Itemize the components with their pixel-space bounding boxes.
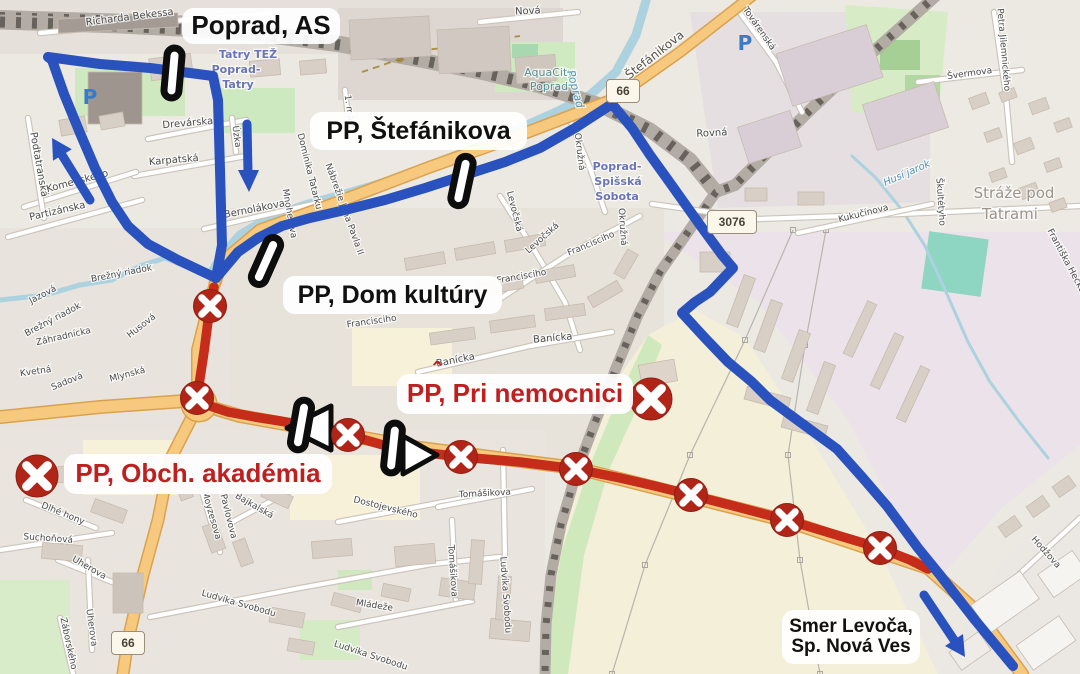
stop-label-poprad-as: Poprad, AS	[182, 8, 340, 44]
stop-label-pp-obch-akademia: PP, Obch. akadémia	[64, 454, 332, 494]
stop-label-pp-pri-nemocnici: ˆ PP, Pri nemocnici	[397, 374, 633, 414]
building	[798, 192, 824, 205]
smer-line-1: Smer Levoča,	[789, 617, 913, 637]
building	[468, 540, 484, 585]
building	[349, 16, 431, 60]
sports-pitch	[921, 231, 988, 297]
stop-label-text: Poprad, AS	[191, 12, 330, 39]
road-badge-66-north: 66	[606, 79, 640, 103]
aqua-label: Poprad	[530, 80, 568, 93]
building	[745, 188, 767, 201]
stop-label-smer-levoca: Smer Levoča, Sp. Nová Ves	[782, 610, 920, 664]
map-canvas: Richarda BekessaTatry TEŽPoprad-TatryDre…	[0, 0, 1080, 674]
station-label: Poprad-	[212, 63, 261, 76]
stop-label-pp-dom-kultury: PP, Dom kultúry	[283, 276, 502, 314]
station-label: Sobota	[595, 190, 639, 203]
bus-stop-capsule	[383, 422, 403, 473]
stop-label-text: PP, Dom kultúry	[298, 282, 488, 308]
building	[437, 26, 511, 74]
station-label: Spišská	[594, 175, 641, 188]
building	[113, 573, 143, 613]
street-road	[503, 450, 505, 557]
stop-label-pp-stefanikova: PP, Štefánikova	[310, 112, 527, 150]
building	[299, 59, 326, 75]
street-label: Nová	[515, 4, 541, 17]
road-badge-66-south: 66	[111, 631, 145, 655]
road-badge-3076: 3076	[707, 210, 757, 234]
bus-stop-marker	[163, 47, 182, 98]
stop-label-text: Smer Levoča, Sp. Nová Ves	[789, 617, 913, 657]
direction-arrow-south	[247, 124, 248, 172]
building	[394, 543, 436, 566]
place-label: Stráže pod	[974, 184, 1055, 202]
place-label: Tatrami	[981, 205, 1038, 223]
station-label: Poprad-	[593, 160, 642, 173]
building	[311, 538, 352, 558]
bus-stop-capsule	[163, 47, 182, 98]
parking-icon: P	[83, 85, 98, 109]
bus-stop-marker	[383, 422, 403, 473]
smer-line-2: Sp. Nová Ves	[791, 637, 910, 657]
street-label: Rovná	[696, 126, 728, 140]
stop-label-text: PP, Štefánikova	[326, 118, 510, 144]
caret-accent: ˆ	[433, 359, 441, 384]
station-label: Tatry	[222, 78, 253, 91]
detour-map-image: Richarda BekessaTatry TEŽPoprad-TatryDre…	[0, 0, 1080, 674]
stop-label-text: PP, Obch. akadémia	[75, 460, 320, 487]
parking-icon: P	[738, 31, 753, 55]
station-label: Tatry TEŽ	[219, 48, 277, 61]
